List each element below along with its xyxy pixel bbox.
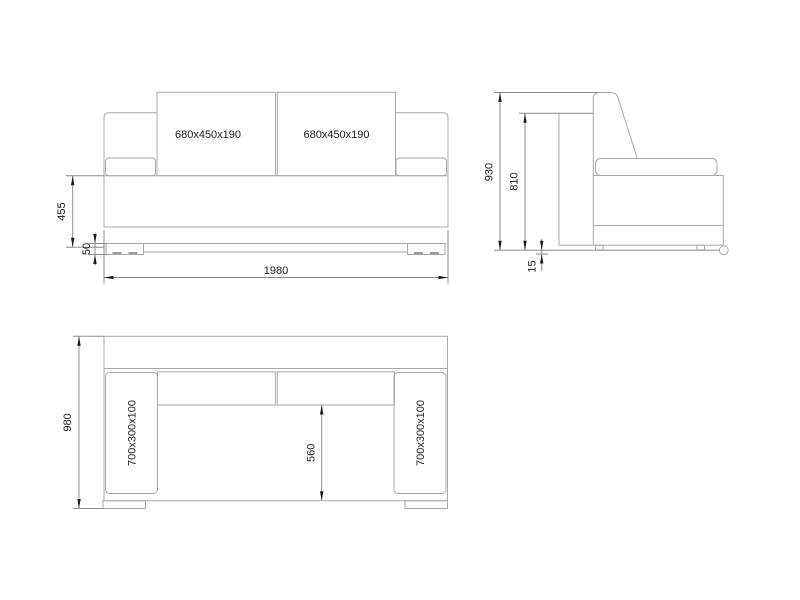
dimension-seat-depth: 560	[305, 405, 323, 501]
dimension-width: 1980	[104, 230, 448, 284]
technical-drawing: 680x450x190 680x450x190 455	[0, 0, 800, 600]
dim-label-810: 810	[508, 172, 520, 190]
dimension-seat-height: 455	[56, 176, 104, 248]
leg-left	[106, 244, 144, 255]
leg-foot	[113, 252, 122, 254]
dimension-depth: 980	[62, 336, 104, 508]
armrest-pad-right	[396, 158, 447, 176]
dimension-total-height: 930	[483, 93, 599, 251]
top-view-outline	[104, 336, 448, 500]
drawing-canvas: 680x450x190 680x450x190 455	[0, 0, 800, 600]
side-view: 930 810 15	[483, 93, 728, 273]
top-leg-left	[103, 501, 146, 509]
leg-foot	[430, 252, 439, 254]
foot-rear	[596, 245, 604, 250]
armrest-pad-left	[106, 158, 156, 176]
armrest-left-label: 700x300x100	[126, 400, 138, 466]
cushion-right-label: 680x450x190	[303, 129, 369, 141]
top-cushion-right	[277, 372, 394, 405]
top-cushion-left	[158, 372, 276, 405]
caster-wheel	[719, 246, 728, 255]
dim-label-50: 50	[81, 243, 93, 255]
foot-front	[697, 245, 705, 250]
seat-cushion-side	[596, 159, 718, 176]
dim-label-455: 455	[56, 202, 68, 220]
front-view: 680x450x190 680x450x190 455	[56, 92, 448, 283]
dim-label-560: 560	[305, 444, 317, 462]
armrest-right-label: 700x300x100	[415, 400, 427, 466]
armrest-right-outline	[396, 113, 449, 227]
dimension-base-height: 50	[81, 233, 107, 266]
backrest-profile	[593, 93, 637, 246]
dim-label-1980: 1980	[264, 265, 288, 277]
dim-label-930: 930	[483, 163, 495, 181]
dimension-floor-clearance: 15	[526, 239, 548, 273]
dim-label-980: 980	[62, 413, 74, 431]
top-leg-right	[405, 501, 448, 509]
leg-right	[408, 244, 446, 255]
top-view: 700x300x100 700x300x100 980 560	[62, 336, 448, 508]
dimension-back-frame-height: 810	[508, 113, 593, 250]
leg-foot	[129, 252, 138, 254]
armrest-left-outline	[104, 113, 157, 227]
cushion-left-label: 680x450x190	[175, 129, 241, 141]
dim-label-15: 15	[526, 260, 538, 272]
leg-foot	[414, 252, 423, 254]
